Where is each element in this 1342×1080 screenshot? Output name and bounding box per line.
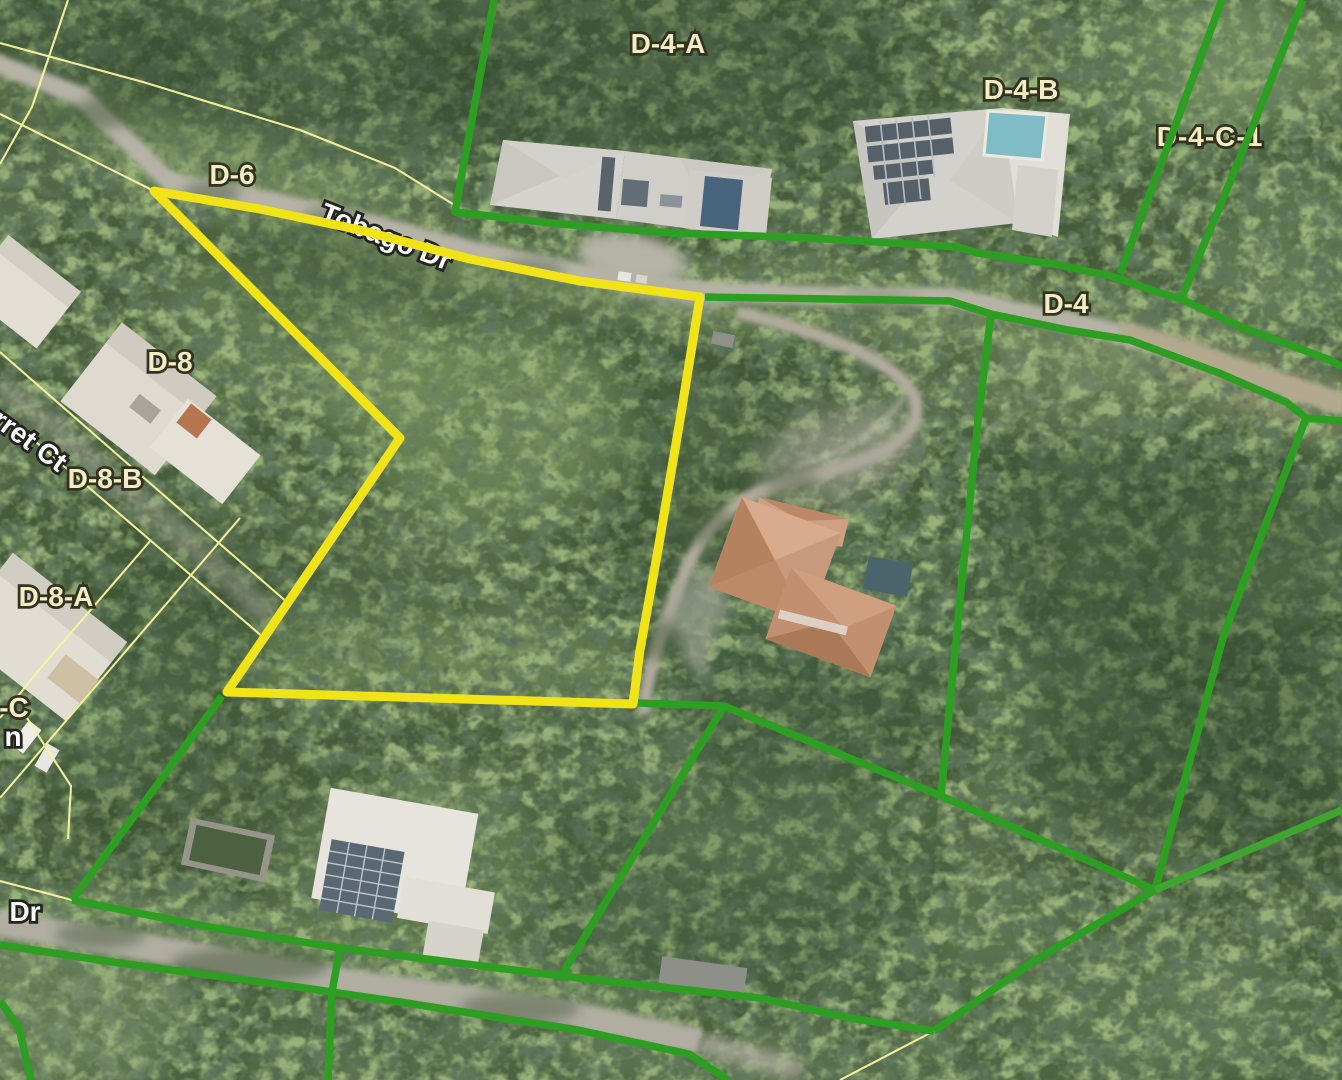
svg-text:D-8-A: D-8-A <box>19 581 94 612</box>
svg-text:D-8-B: D-8-B <box>68 463 143 494</box>
svg-text:D-4: D-4 <box>1043 288 1089 319</box>
svg-text:D-4-A: D-4-A <box>631 28 706 59</box>
svg-text:D-8: D-8 <box>147 346 192 377</box>
svg-text:-C: -C <box>0 692 29 723</box>
svg-text:Dr: Dr <box>9 896 40 927</box>
svg-text:n: n <box>4 721 21 752</box>
svg-text:D-6: D-6 <box>209 159 254 190</box>
svg-text:D-4-B: D-4-B <box>984 74 1059 105</box>
